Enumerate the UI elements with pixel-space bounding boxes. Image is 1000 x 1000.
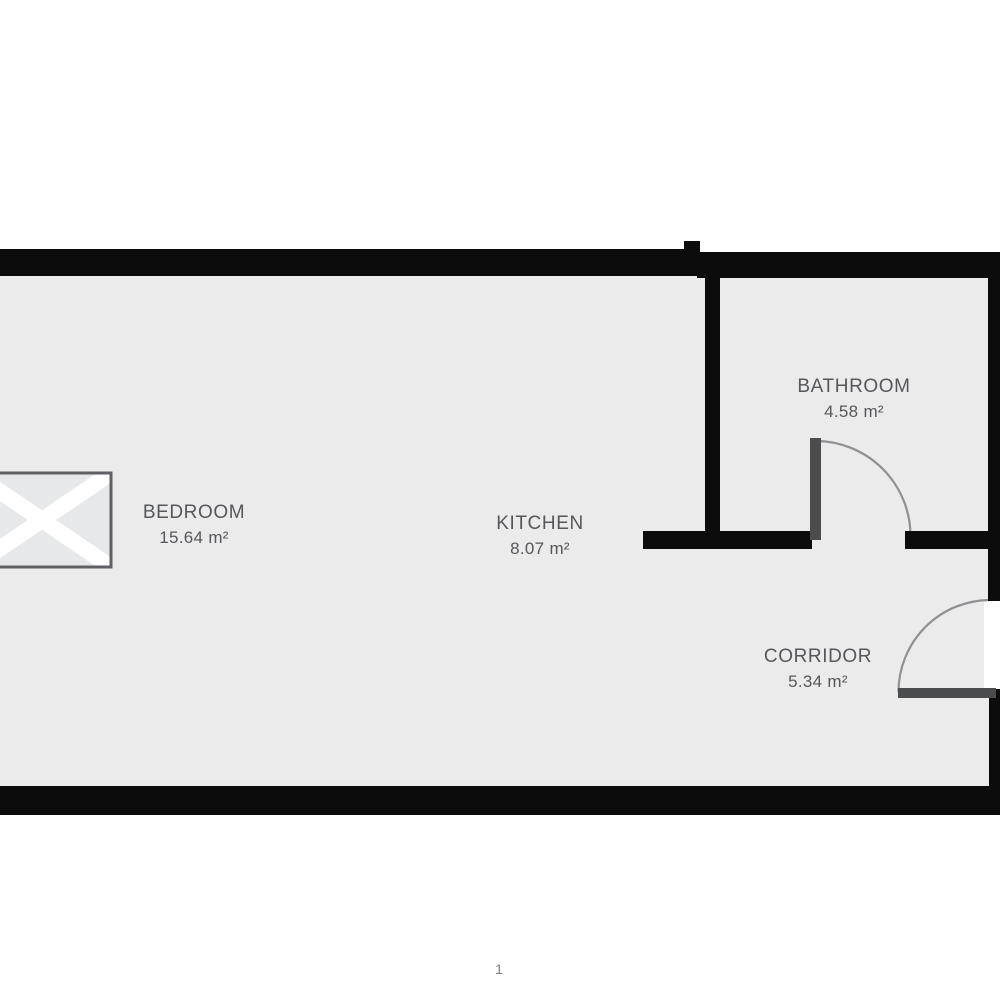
page-number: 1 [484,961,514,977]
entrance-doorway-opening [984,599,1000,690]
entrance-door-leaf [898,688,996,698]
kitchen-bathroom-wall [705,276,720,549]
floor-area [0,256,1000,804]
right-exterior-wall-lower [989,689,1000,789]
top-exterior-wall-left [0,249,700,276]
bathroom-corridor-wall-left [643,531,812,549]
top-exterior-wall-right [697,252,1000,278]
bottom-exterior-wall [0,786,1000,815]
right-exterior-wall-upper [988,252,1000,601]
bathroom-door-leaf [810,438,821,540]
top-wall-step-notch [684,241,700,253]
bathroom-corridor-wall-right [905,531,1000,549]
bed-symbol [0,473,111,567]
floorplan-canvas: BEDROOM 15.64 m² KITCHEN 8.07 m² BATHROO… [0,0,1000,1000]
floorplan-drawing [0,0,1000,1000]
